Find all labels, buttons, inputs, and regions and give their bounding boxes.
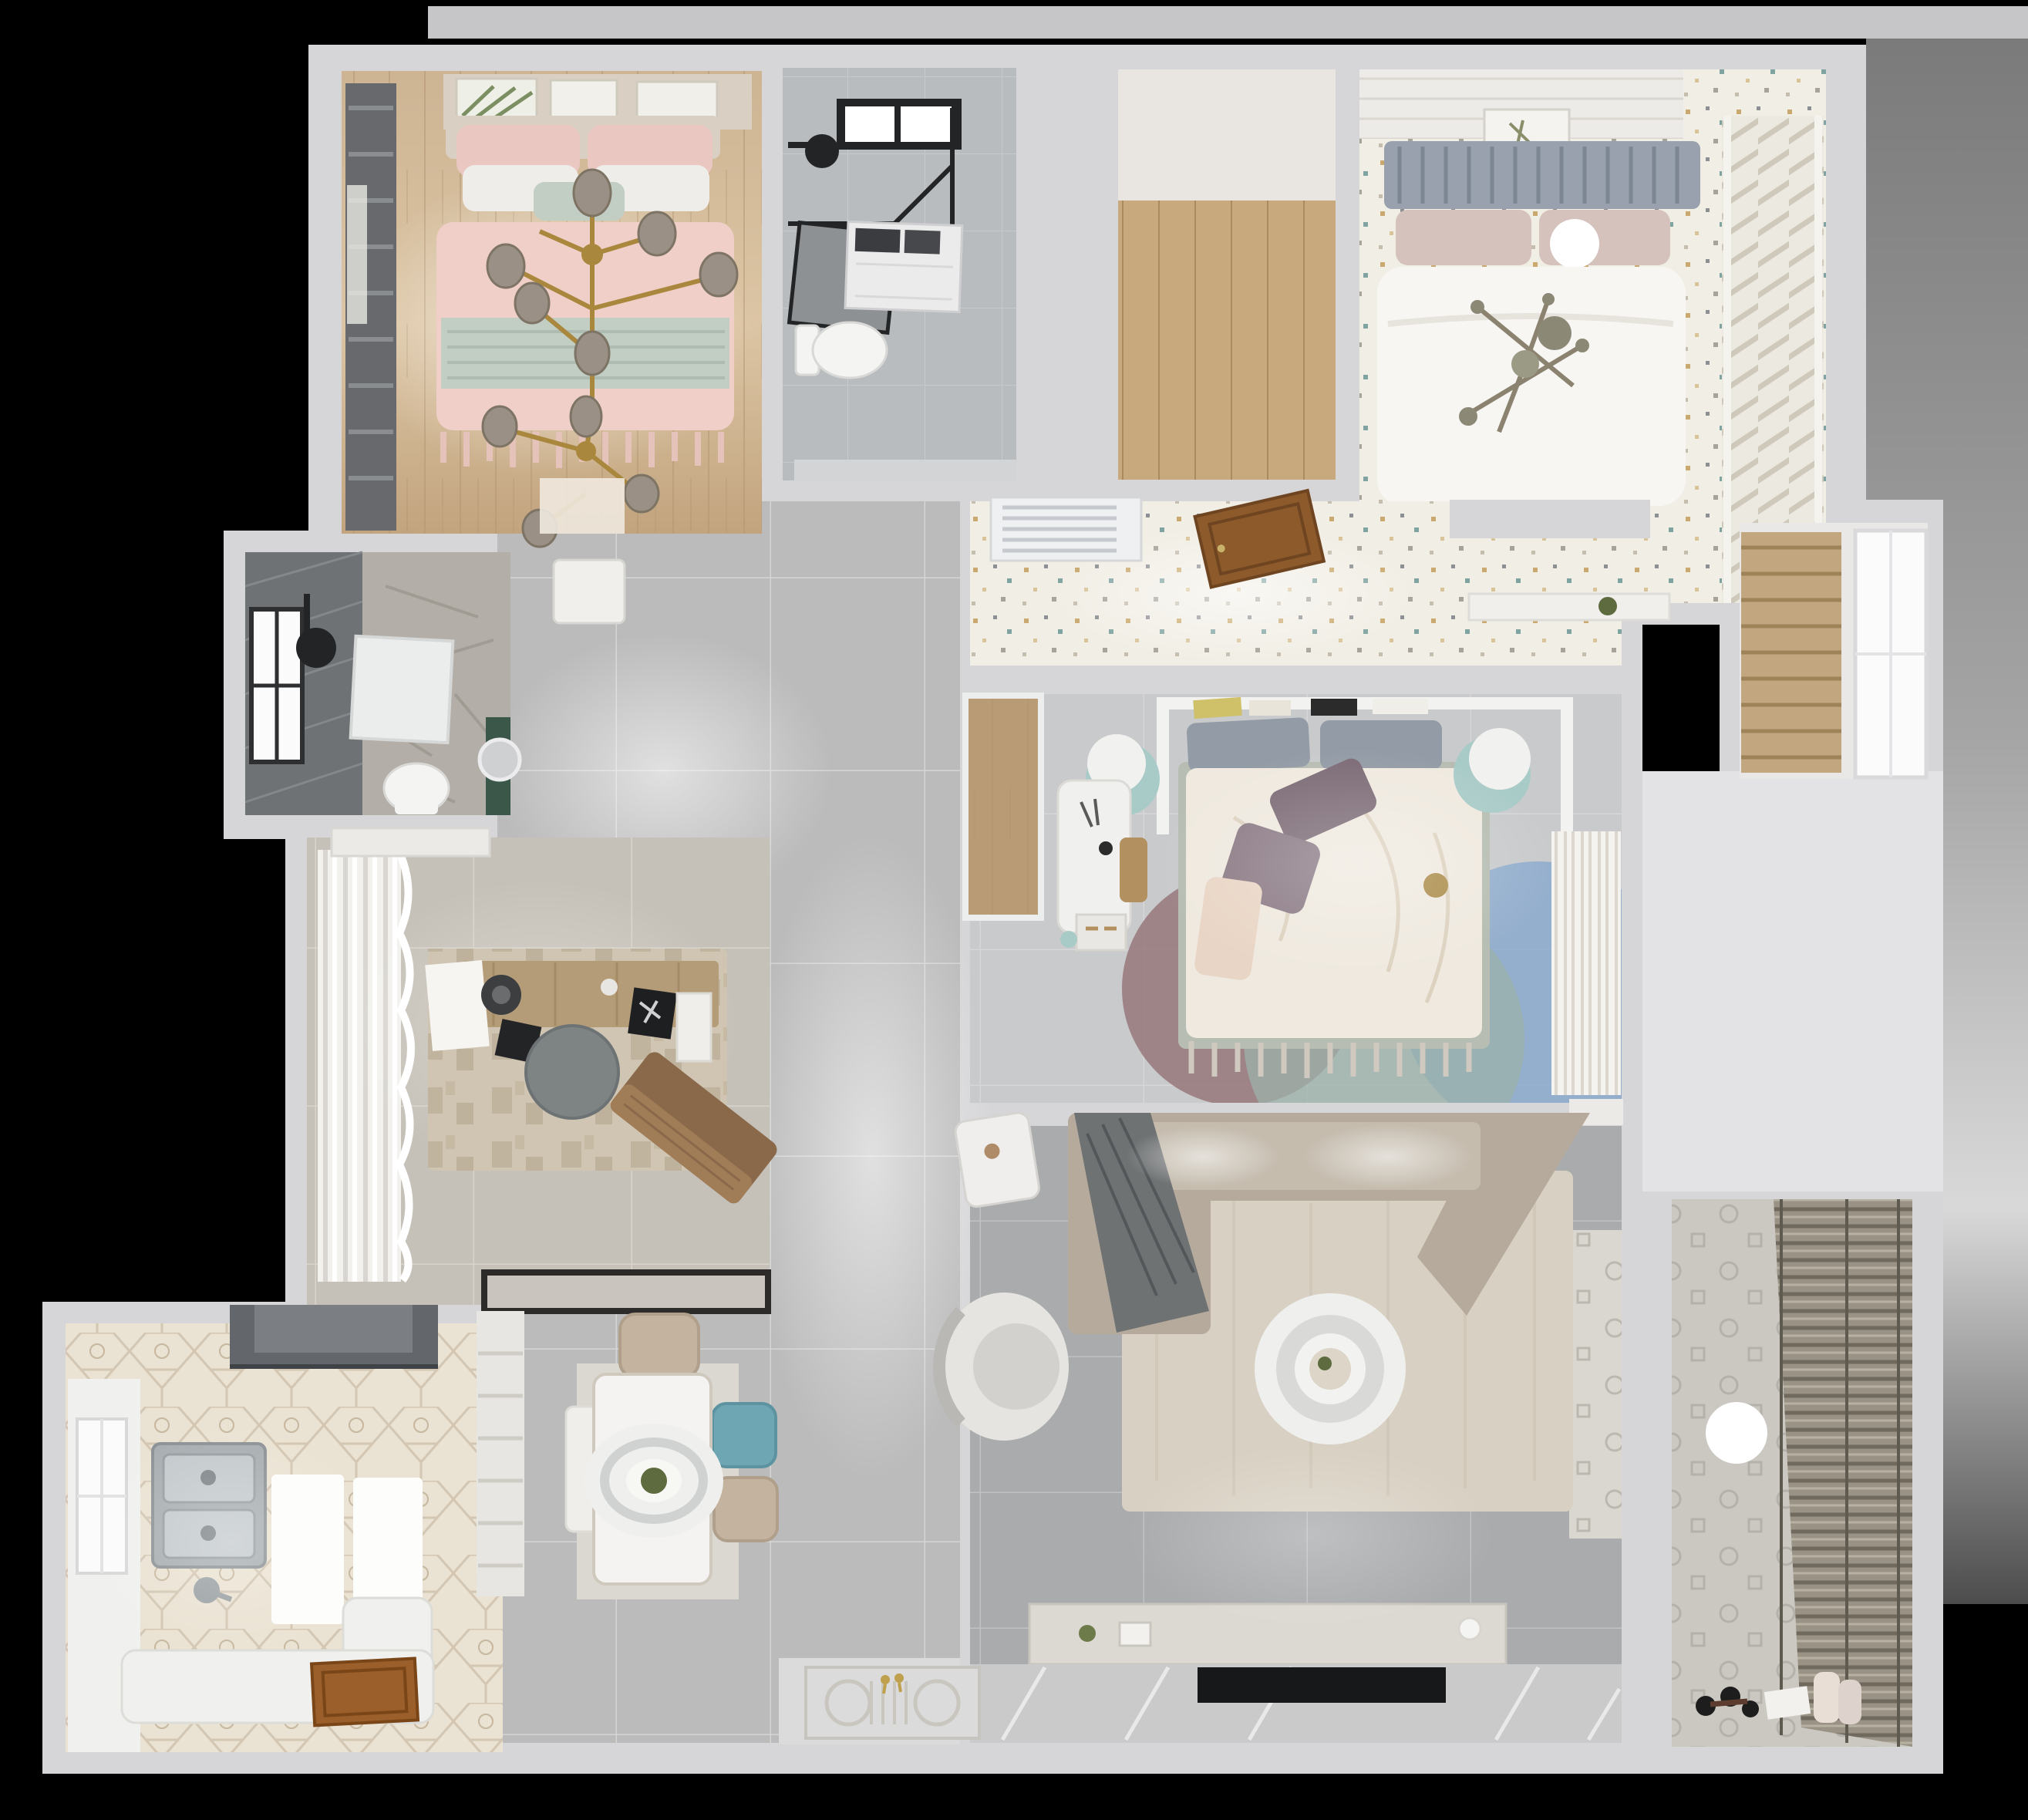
floorplan-stage: [0, 0, 2028, 1820]
desk-cup: [601, 979, 618, 996]
niche-wood-shelf: [1741, 532, 1841, 773]
room-living: [939, 1111, 1622, 1743]
study-chair-gray: [526, 1026, 618, 1118]
entry-doormat: [806, 1667, 979, 1738]
bed2-pillow-left: [1396, 210, 1531, 265]
corridor-top-wall-segment: [1450, 500, 1650, 538]
pendant-lamp-icon: [584, 1424, 723, 1538]
closet-niche: [1740, 523, 1928, 779]
room-kitchen: [66, 1305, 503, 1752]
coffee-table-round: [1255, 1293, 1406, 1444]
dining-chair-top: [620, 1314, 699, 1377]
sbath-toilet: [384, 763, 449, 814]
closet-ceiling: [1118, 69, 1336, 201]
dining-chair-teal: [712, 1404, 776, 1467]
niche-window: [1855, 531, 1926, 777]
closet-wood-floor: [1118, 201, 1336, 480]
bed2-sphere-lamp-icon: [1550, 219, 1599, 268]
desk-side-shelf: [677, 993, 711, 1061]
sofa-glow1: [1126, 1126, 1280, 1188]
study-doormat: [484, 1272, 768, 1311]
living-pattern-strip: [1569, 1230, 1622, 1539]
corridor-dressing: [970, 490, 1669, 666]
range-hood: [230, 1305, 438, 1368]
wardrobe-hanging-clothes: [1551, 831, 1621, 1095]
console-books: [1120, 1623, 1150, 1646]
master-glow: [1157, 748, 1558, 979]
living-glow: [1126, 1442, 1496, 1627]
bath1-skylight-glass2: [901, 106, 952, 142]
lounge-chair-round: [939, 1293, 1069, 1441]
ac-vent-unit: [991, 497, 1141, 561]
sofa-glow2: [1303, 1124, 1473, 1189]
sbath-window: [251, 609, 302, 762]
kitchen-glow: [85, 1419, 378, 1666]
sbath-mirror-icon: [480, 740, 520, 780]
bed2-duvet: [1377, 267, 1686, 506]
pendant-plant: [641, 1468, 667, 1494]
room-closet-wood: [1118, 69, 1336, 480]
desk-camera-lens: [492, 986, 510, 1004]
armchair-small: [954, 1111, 1040, 1208]
room-bathroom-top: [783, 68, 1016, 480]
sphere-lamp-icon: [1706, 1402, 1767, 1464]
bath1-skylight-glass1: [845, 106, 894, 142]
books-on-shelf: [1193, 697, 1242, 719]
wall-right-blank: [1642, 771, 1943, 1191]
dining-chair-bottom: [714, 1478, 777, 1541]
console-plant-icon: [1079, 1625, 1096, 1642]
desk-item: [1099, 841, 1113, 855]
tablet-on-shelf: [1311, 699, 1357, 716]
bedroom1-window-sliver: [347, 185, 367, 324]
sbath-shower-head-icon: [296, 628, 336, 668]
plant-icon: [1598, 597, 1617, 615]
toilet-top: [796, 322, 887, 378]
washing-machine: [845, 221, 962, 312]
master-closet-grain: [965, 696, 1041, 918]
room-small-bath: [245, 552, 520, 815]
desk-stool-wood: [1120, 838, 1147, 902]
floorplan-render: [0, 0, 2028, 1820]
desk-papers: [425, 960, 489, 1051]
desk-drawer: [1076, 915, 1126, 950]
console-plant-shelf: [1469, 594, 1669, 620]
sbath-shower-tray: [351, 636, 453, 743]
book-white: [1249, 700, 1291, 716]
room-balcony-bath: [1672, 1199, 1912, 1747]
tv-panel: [1198, 1667, 1446, 1703]
kitchen-wood-door: [312, 1658, 418, 1725]
top-edge-strip: [428, 6, 2028, 39]
study-shelf: [332, 828, 490, 856]
table-plant: [1318, 1357, 1332, 1370]
shower-head-icon: [805, 134, 839, 168]
bath1-threshold: [794, 460, 1016, 480]
desk-bottle: [1060, 931, 1077, 948]
bed1-bench: [540, 478, 625, 534]
console-vase: [1459, 1618, 1481, 1640]
lounge-seat-cushion: [973, 1323, 1059, 1410]
room-study: [307, 828, 780, 1311]
book-stack: [1373, 699, 1428, 714]
hall-cabinet: [554, 560, 625, 623]
room-bedroom-pink: [342, 71, 762, 547]
